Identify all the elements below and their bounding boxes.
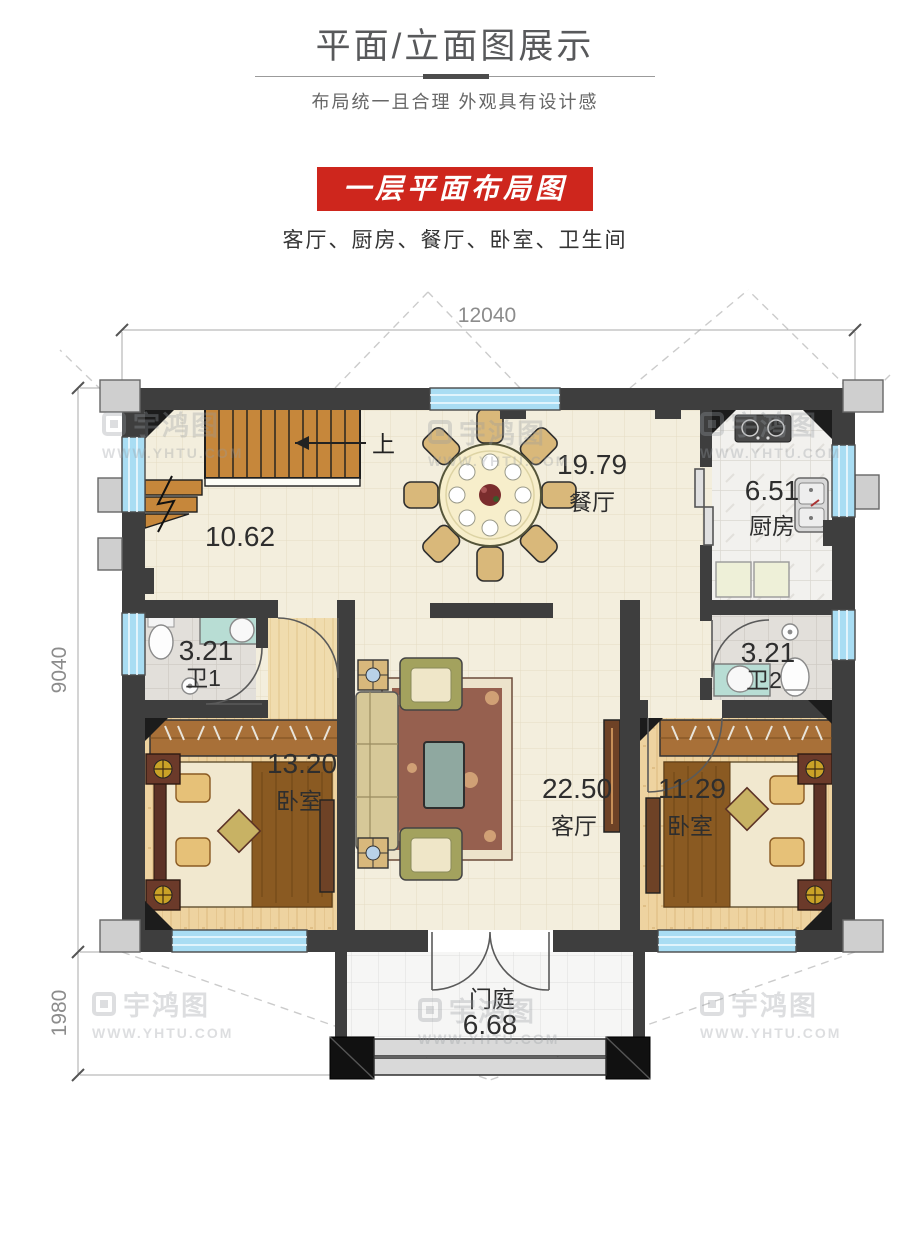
title-divider: [255, 74, 655, 79]
window-kitchen: [832, 445, 855, 517]
dim-width: 12040: [458, 304, 516, 327]
page-title: 平面/立面图展示: [0, 18, 910, 69]
label-bedroomright-name: 卧室: [667, 813, 713, 839]
label-living-area: 22.50: [542, 773, 612, 804]
window-bedroom-left: [172, 930, 307, 952]
window-bath2: [832, 610, 855, 660]
room-list: 客厅、厨房、餐厅、卧室、卫生间: [0, 224, 910, 254]
dim-height: 9040: [48, 647, 71, 694]
window-dining: [430, 388, 560, 410]
label-stairhall-area: 10.62: [205, 521, 275, 552]
step-1: [374, 1039, 606, 1056]
label-bedroomleft-area: 13.20: [267, 748, 337, 779]
window-bath1: [122, 613, 145, 675]
hallway-floor: [268, 618, 337, 718]
window-stair: [122, 437, 145, 512]
label-bath1-name: 卫1: [185, 665, 221, 691]
window-bedroom-right: [658, 930, 796, 952]
label-bedroomright-area: 11.29: [658, 773, 726, 804]
label-dining-area: 19.79: [557, 449, 627, 480]
label-living-name: 客厅: [551, 813, 597, 839]
label-bath1-area: 3.21: [179, 635, 234, 666]
label-porch-area: 6.68: [463, 1009, 518, 1040]
label-bath2-name: 卫2: [746, 667, 782, 693]
stair-up-label: 上: [372, 431, 395, 457]
label-kitchen-name: 厨房: [749, 513, 795, 539]
label-bedroomleft-name: 卧室: [276, 788, 322, 814]
label-bath2-area: 3.21: [741, 637, 796, 668]
label-kitchen-area: 6.51: [745, 475, 800, 506]
dining-table: [404, 409, 576, 581]
dim-porch: 1980: [48, 990, 71, 1037]
floor-plan: 12040 9040 1980 上: [0, 280, 910, 1110]
section-banner: 一层平面布局图: [317, 167, 593, 211]
page-subtitle: 布局统一且合理 外观具有设计感: [0, 88, 910, 114]
porch: [330, 1037, 650, 1079]
label-dining-name: 餐厅: [569, 489, 615, 515]
step-2: [374, 1058, 606, 1075]
